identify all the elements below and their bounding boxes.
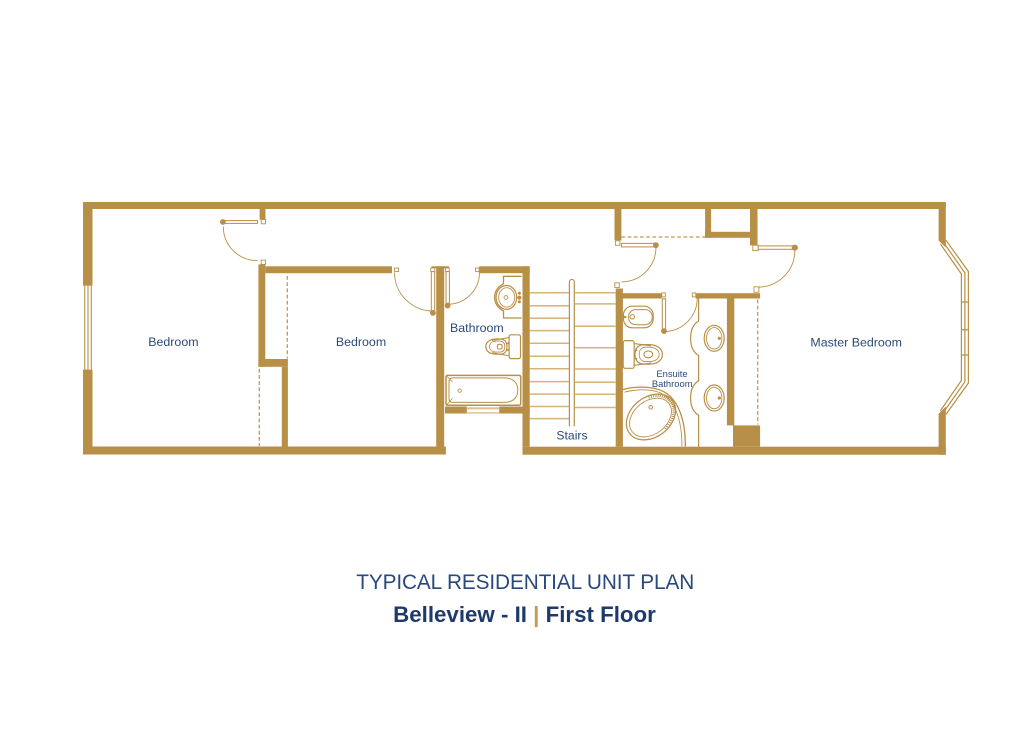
svg-text:Bathroom: Bathroom — [652, 378, 693, 389]
svg-text:Master Bedroom: Master Bedroom — [810, 335, 902, 349]
svg-text:Belleview - II | First Floor: Belleview - II | First Floor — [393, 602, 656, 627]
svg-text:TYPICAL RESIDENTIAL UNIT PLAN: TYPICAL RESIDENTIAL UNIT PLAN — [356, 571, 694, 594]
svg-text:Bathroom: Bathroom — [450, 321, 504, 335]
svg-text:Bedroom: Bedroom — [148, 335, 198, 349]
svg-text:Bedroom: Bedroom — [336, 335, 386, 349]
svg-text:Stairs: Stairs — [556, 429, 587, 443]
